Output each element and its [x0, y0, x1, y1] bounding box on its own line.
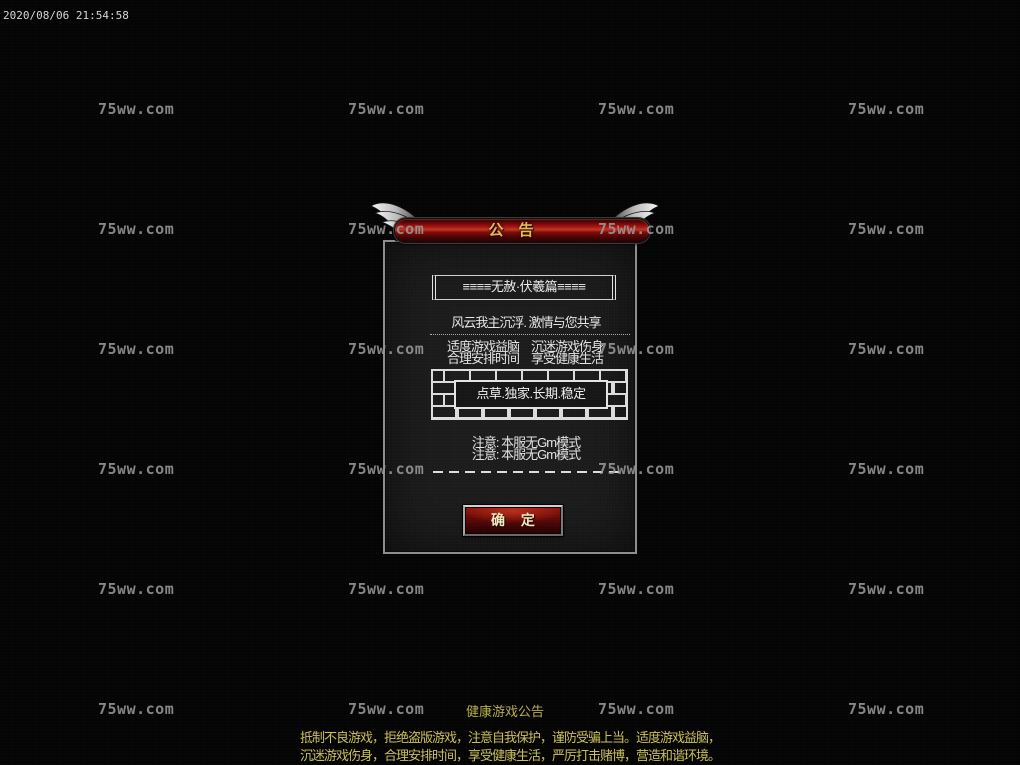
watermark-text: 75ww.com: [98, 580, 174, 598]
announcement-dialog: 公 告 ≡≡≡≡无赦·伏羲篇≡≡≡≡ 风云我主沉浮. 激情与您共享 适度游戏益脑…: [383, 218, 637, 554]
watermark-text: 75ww.com: [98, 220, 174, 238]
watermark-text: 75ww.com: [848, 340, 924, 358]
dialog-title-bar[interactable]: 公 告: [394, 218, 650, 243]
server-title-box: ≡≡≡≡无赦·伏羲篇≡≡≡≡: [432, 275, 616, 300]
confirm-button[interactable]: 确 定: [463, 505, 563, 536]
game-screen: 2020/08/06 21:54:58 75ww.com75ww.com75ww…: [0, 0, 1020, 765]
watermark-text: 75ww.com: [848, 460, 924, 478]
watermark-text: 75ww.com: [848, 100, 924, 118]
watermark-text: 75ww.com: [348, 580, 424, 598]
watermark-text: 75ww.com: [848, 220, 924, 238]
watermark-text: 75ww.com: [848, 580, 924, 598]
dotted-divider: [430, 334, 630, 335]
health-notice-line1: 抵制不良游戏，拒绝盗版游戏，注意自我保护，谨防受骗上当。适度游戏益脑，: [0, 727, 1020, 746]
watermark-text: 75ww.com: [98, 100, 174, 118]
slogan-text: 风云我主沉浮. 激情与您共享: [419, 317, 633, 329]
dialog-title: 公 告: [395, 219, 649, 242]
dashed-divider: [433, 471, 623, 473]
dialog-body: ≡≡≡≡无赦·伏羲篇≡≡≡≡ 风云我主沉浮. 激情与您共享 适度游戏益脑 沉迷游…: [383, 240, 637, 554]
brick-banner-text: 点草.独家.长期.稳定: [454, 380, 608, 409]
watermark-text: 75ww.com: [348, 100, 424, 118]
brick-banner: 点草.独家.长期.稳定: [431, 369, 628, 420]
watermark-text: 75ww.com: [98, 460, 174, 478]
watermark-text: 75ww.com: [598, 580, 674, 598]
timestamp: 2020/08/06 21:54:58: [3, 9, 129, 22]
notice-line2: 注意: 本服无Gm模式: [419, 449, 633, 461]
health-notice-title: 健康游戏公告: [0, 701, 1020, 720]
health-tip-line2: 合理安排时间 享受健康生活: [417, 353, 633, 365]
health-notice-line2: 沉迷游戏伤身，合理安排时间，享受健康生活，严厉打击赌博，营造和谐环境。: [0, 745, 1020, 764]
watermark-text: 75ww.com: [98, 340, 174, 358]
watermark-text: 75ww.com: [598, 100, 674, 118]
